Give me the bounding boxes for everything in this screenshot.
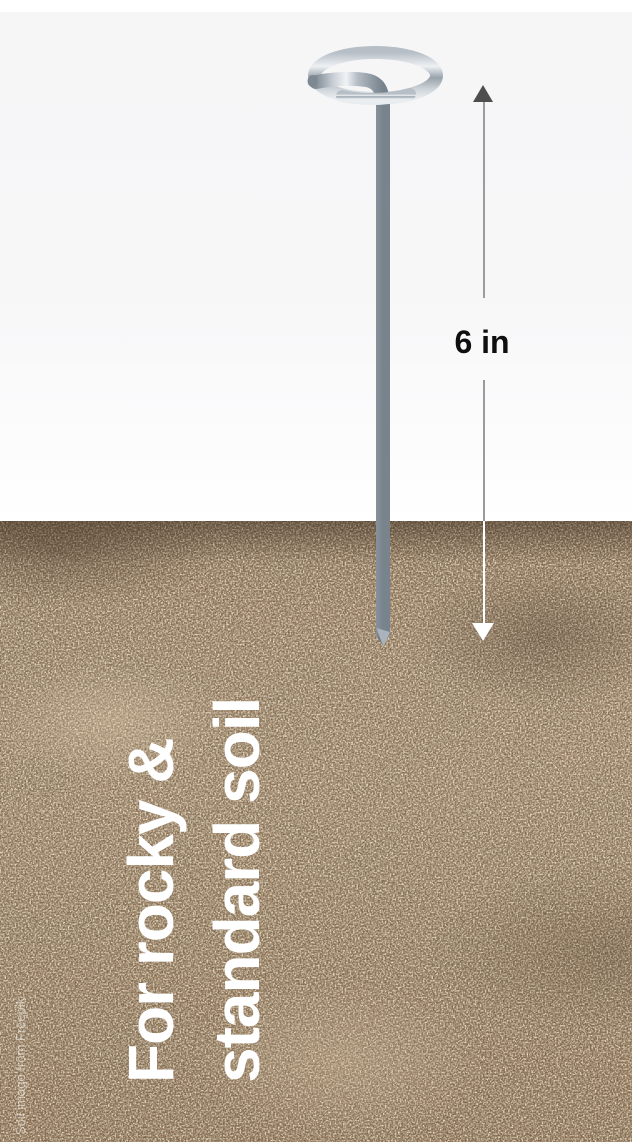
arrow-down-icon [472,623,494,641]
measurement-annotation: 6 in [0,0,632,1142]
measurement-line-lower [483,380,485,623]
product-diagram: For rocky & standard soil Soil image fro… [0,0,632,1142]
arrow-up-icon [473,85,493,102]
measurement-line-upper [483,102,485,298]
measurement-label: 6 in [432,324,532,361]
